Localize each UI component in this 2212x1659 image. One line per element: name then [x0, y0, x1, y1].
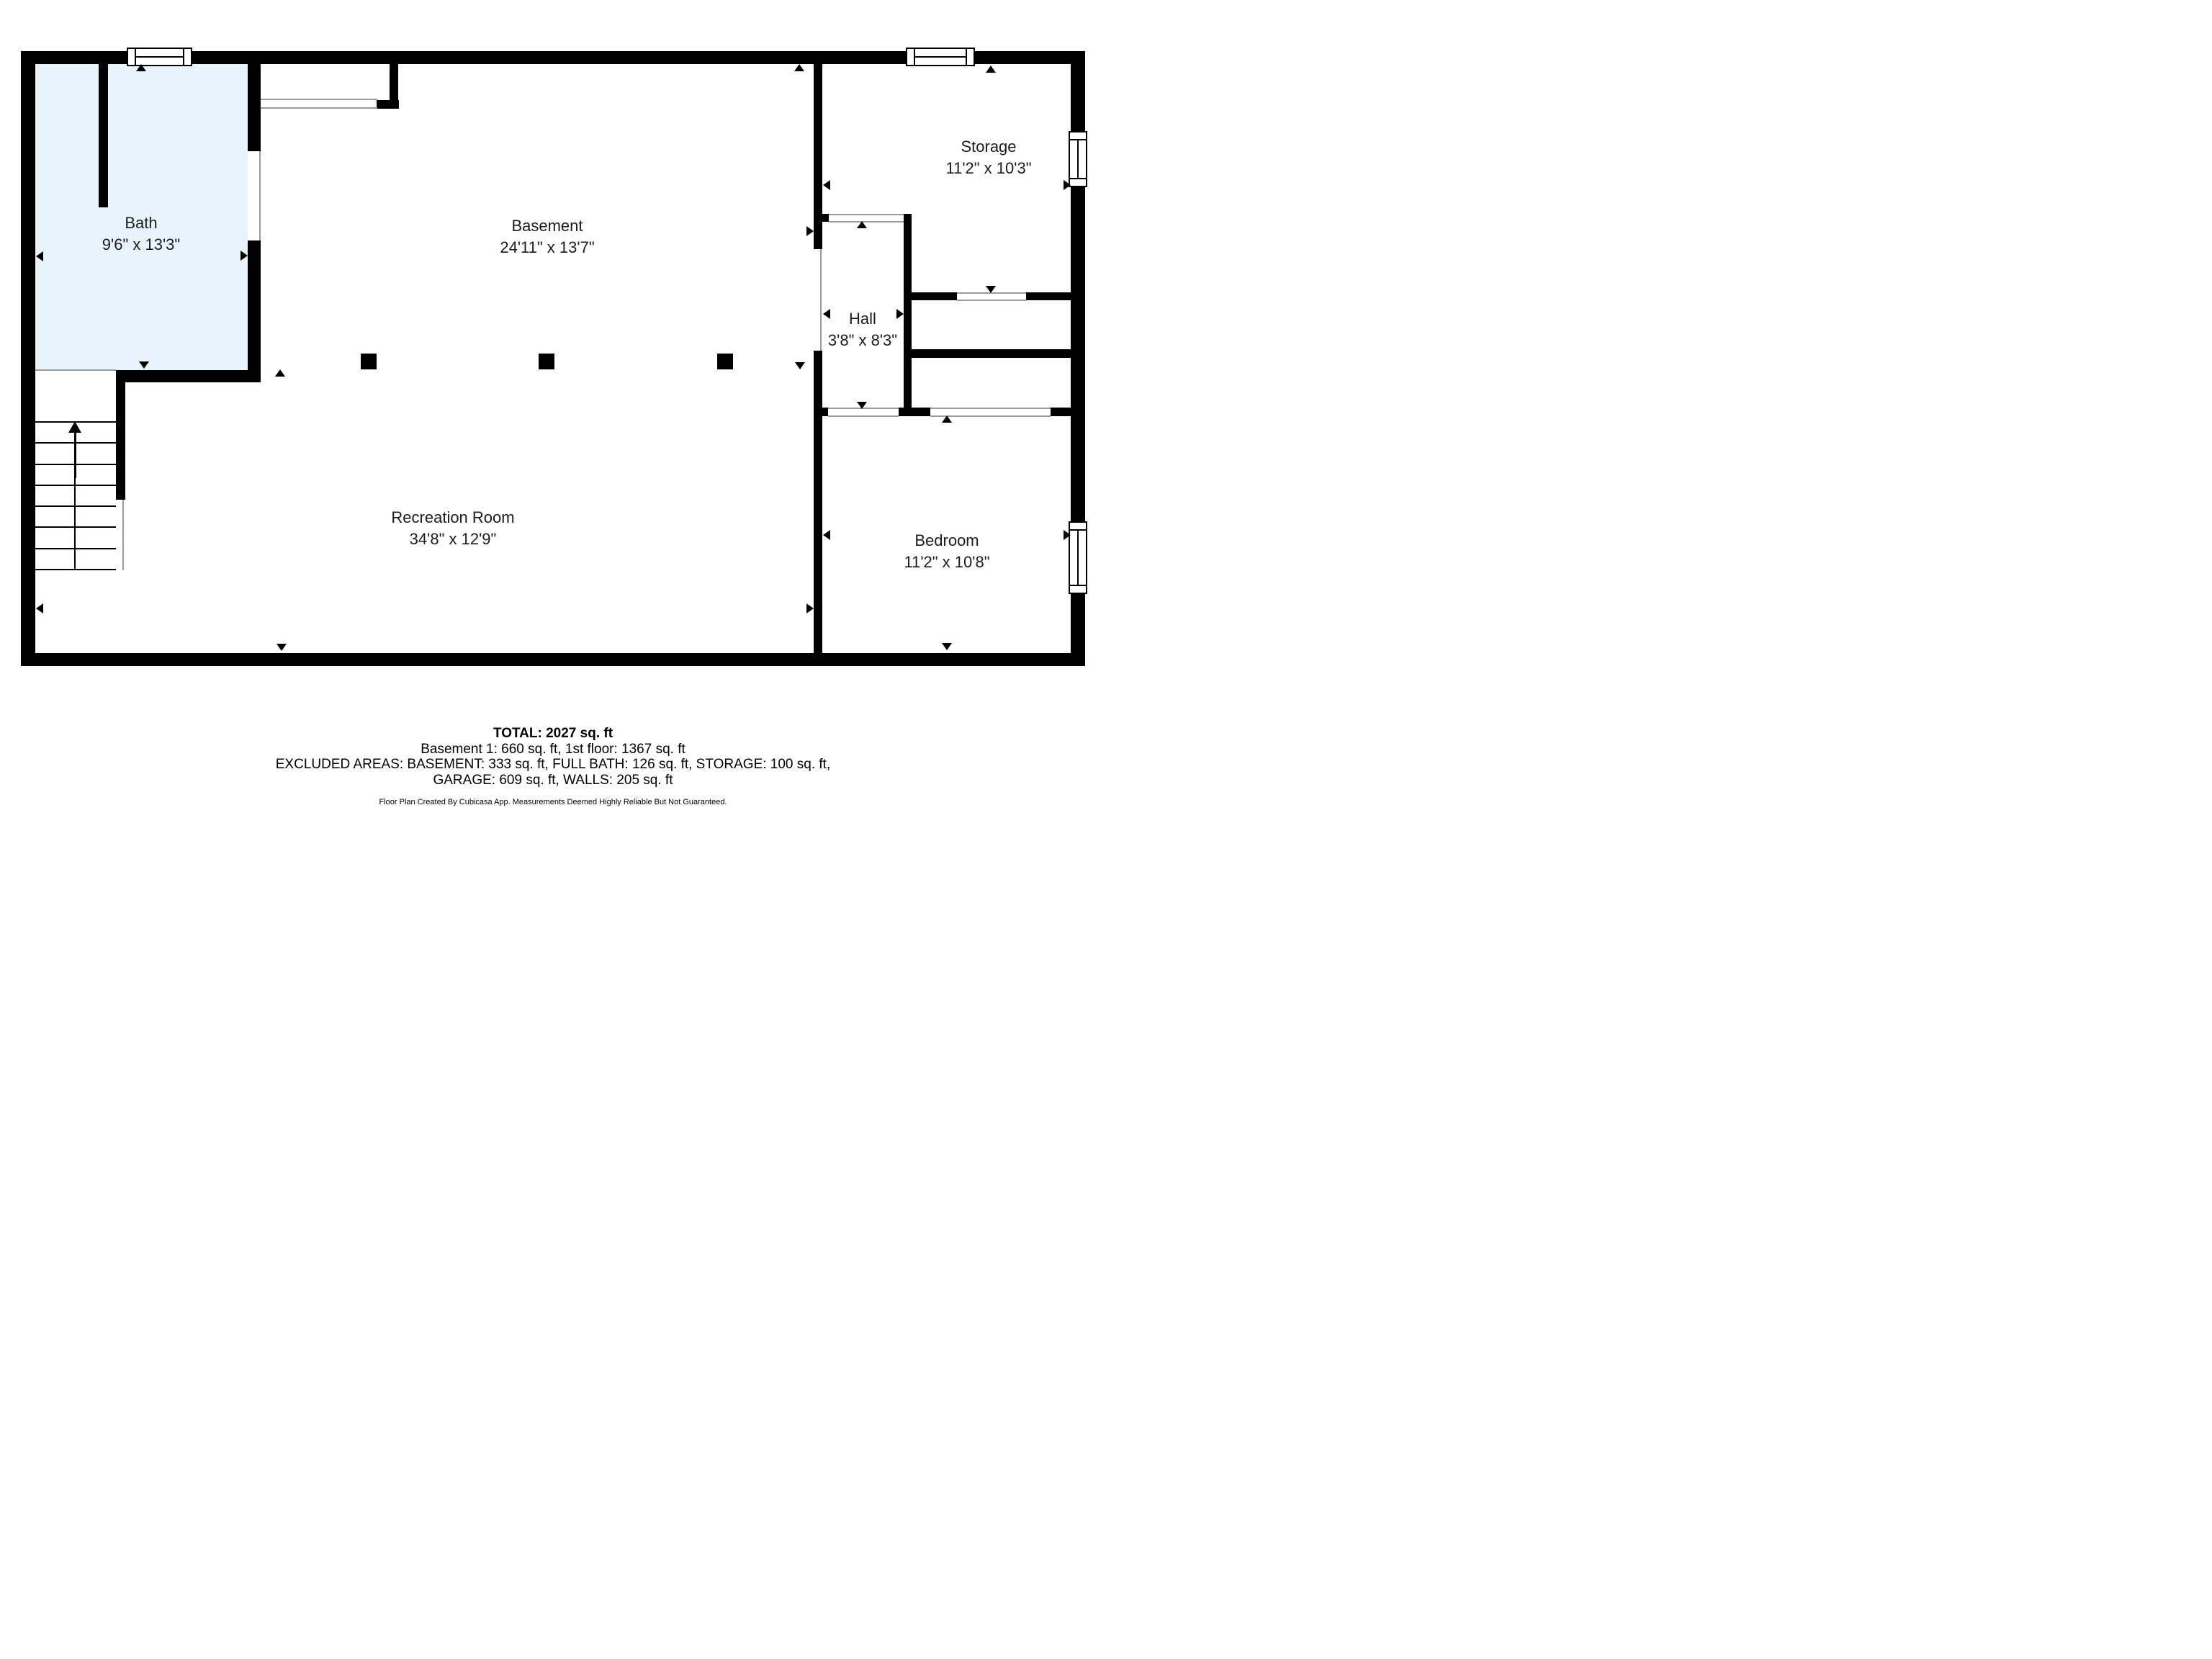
measure-arrow-up-icon [136, 64, 146, 71]
room-dims: 24'11" x 13'7" [500, 237, 594, 258]
stair-tread [35, 526, 116, 547]
measure-arrow-right-icon [240, 251, 248, 261]
measure-arrow-down-icon [139, 361, 149, 369]
wall-exterior-left [21, 51, 35, 666]
wall-exterior-bottom [21, 653, 1085, 666]
wall-bath-bottom [116, 370, 261, 382]
measure-arrow-right-icon [806, 603, 814, 613]
stairs-direction-arrow [74, 433, 76, 478]
floor-plan: Bath 9'6" x 13'3" Basement 24'11" x 13'7… [0, 0, 1106, 829]
measure-arrow-down-icon [942, 643, 952, 650]
room-name: Bedroom [904, 530, 989, 552]
opening-basement-passage-bottom [261, 107, 377, 109]
measure-arrow-up-icon [275, 369, 285, 377]
floor-areas: Basement 1: 660 sq. ft, 1st floor: 1367 … [0, 742, 1106, 757]
support-post-1 [361, 354, 377, 369]
opening-hall-top-a [829, 214, 904, 215]
disclaimer: Floor Plan Created By Cubicasa App. Meas… [0, 798, 1106, 807]
stair-tread [35, 505, 116, 526]
room-dims: 11'2" x 10'8" [904, 552, 989, 573]
measure-arrow-down-icon [857, 402, 867, 409]
opening-bath-door [259, 151, 261, 240]
room-dims: 34'8" x 12'9" [391, 529, 514, 550]
measure-arrow-left-icon [36, 603, 43, 613]
stairs-direction-arrow-head-icon [68, 421, 81, 433]
excluded-areas-1: EXCLUDED AREAS: BASEMENT: 333 sq. ft, FU… [0, 757, 1106, 773]
opening-storage-bottom-b [957, 300, 1026, 301]
room-label-hall: Hall 3'8" x 8'3" [828, 308, 897, 351]
wall-bedroom-top-right [1051, 408, 1072, 416]
total-area: TOTAL: 2027 sq. ft [0, 726, 1106, 742]
wall-storage-bottom-left [912, 292, 957, 300]
room-label-recreation: Recreation Room 34'8" x 12'9" [391, 507, 514, 550]
opening-basement-passage-top [261, 99, 377, 100]
floor-plan-page: Bath 9'6" x 13'3" Basement 24'11" x 13'7… [0, 0, 1106, 829]
opening-closet-bedroom-a [930, 408, 1051, 409]
opening-basement-hall-door [820, 249, 822, 351]
opening-staircase-right-edge [122, 500, 124, 570]
wall-nook-horizontal [377, 100, 399, 109]
wall-bath-right-upper [248, 64, 261, 151]
measure-arrow-left-icon [36, 251, 43, 261]
room-name: Storage [945, 136, 1031, 158]
support-post-2 [539, 354, 554, 369]
measure-arrow-down-icon [276, 644, 287, 651]
wall-bath-right-lower [248, 240, 261, 370]
support-post-3 [717, 354, 733, 369]
measure-arrow-down-icon [795, 362, 805, 369]
excluded-areas-2: GARAGE: 609 sq. ft, WALLS: 205 sq. ft [0, 773, 1106, 788]
wall-closet-bottom [912, 349, 1072, 358]
wall-bath-partition [99, 64, 108, 207]
opening-hall-bedroom-b [828, 415, 899, 417]
window-bedroom-right [1069, 521, 1087, 594]
room-dims: 9'6" x 13'3" [102, 234, 180, 256]
room-dims: 11'2" x 10'3" [945, 158, 1031, 179]
measure-arrow-left-icon [823, 180, 830, 190]
wall-staircase-right [116, 382, 125, 500]
measure-arrow-right-icon [896, 309, 904, 319]
measure-arrow-left-icon [823, 530, 830, 540]
room-dims: 3'8" x 8'3" [828, 330, 897, 351]
room-label-bedroom: Bedroom 11'2" x 10'8" [904, 530, 989, 573]
measure-arrow-up-icon [986, 66, 996, 73]
wall-hall-right [904, 214, 912, 416]
measure-arrow-right-icon [806, 226, 814, 236]
wall-hall-top-stub [814, 214, 829, 222]
measure-arrow-right-icon [1064, 530, 1071, 540]
opening-bath-stairs-edge [35, 369, 116, 371]
room-name: Basement [500, 215, 594, 237]
room-name: Recreation Room [391, 507, 514, 529]
stair-tread [35, 548, 116, 569]
window-storage-right [1069, 131, 1087, 187]
wall-bedroom-top-stub [814, 408, 828, 416]
room-label-basement: Basement 24'11" x 13'7" [500, 215, 594, 258]
window-storage-top [906, 48, 975, 66]
area-summary: TOTAL: 2027 sq. ft Basement 1: 660 sq. f… [0, 726, 1106, 807]
measure-arrow-up-icon [942, 415, 952, 423]
room-label-bath: Bath 9'6" x 13'3" [102, 212, 180, 256]
stair-tread [35, 485, 116, 505]
room-name: Hall [828, 308, 897, 330]
wall-storage-bottom-right [1026, 292, 1072, 300]
room-label-storage: Storage 11'2" x 10'3" [945, 136, 1031, 179]
measure-arrow-up-icon [794, 64, 804, 71]
wall-bedroom-top-chunk [899, 408, 930, 416]
wall-divider-lower [814, 351, 822, 653]
measure-arrow-down-icon [986, 286, 996, 293]
measure-arrow-up-icon [857, 221, 867, 228]
measure-arrow-right-icon [1064, 180, 1071, 190]
room-name: Bath [102, 212, 180, 234]
